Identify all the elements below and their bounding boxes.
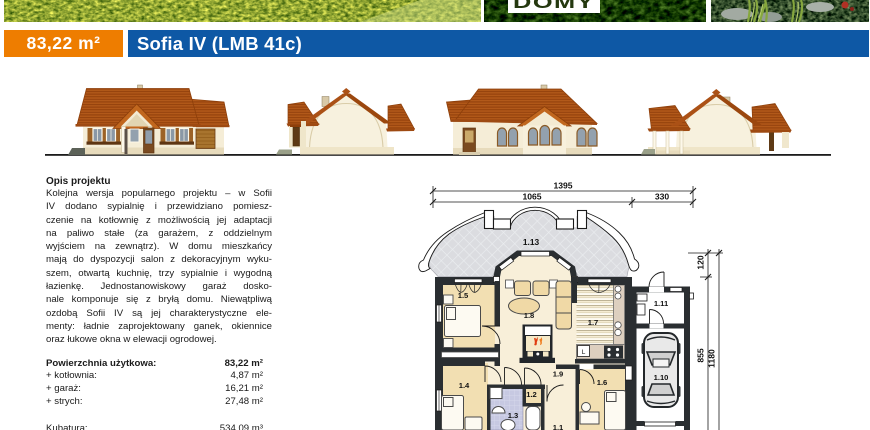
svg-text:1065: 1065: [522, 192, 541, 202]
svg-text:L: L: [582, 349, 586, 356]
svg-text:1.8: 1.8: [524, 311, 535, 320]
svg-text:330: 330: [655, 192, 670, 202]
svg-text:1.5: 1.5: [458, 291, 469, 300]
svg-text:1.7: 1.7: [588, 318, 599, 327]
svg-text:1.1: 1.1: [553, 423, 564, 430]
svg-text:1.13: 1.13: [523, 237, 540, 247]
svg-text:855: 855: [696, 348, 706, 363]
svg-text:120: 120: [696, 255, 706, 270]
svg-text:1.11: 1.11: [654, 299, 669, 308]
svg-text:1.6: 1.6: [597, 378, 608, 387]
svg-text:1.3: 1.3: [508, 411, 519, 420]
svg-text:1.9: 1.9: [553, 370, 564, 379]
svg-text:1.2: 1.2: [526, 390, 537, 399]
svg-text:1.4: 1.4: [459, 381, 470, 390]
svg-text:1395: 1395: [553, 181, 572, 191]
svg-text:1.10: 1.10: [654, 373, 669, 382]
svg-text:1180: 1180: [707, 349, 717, 368]
